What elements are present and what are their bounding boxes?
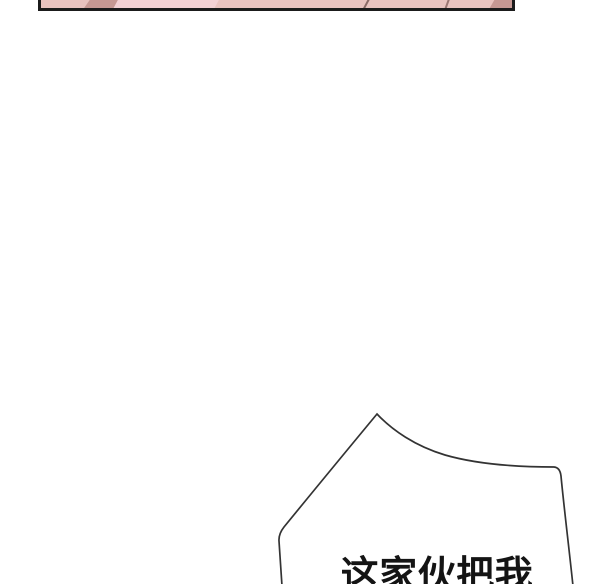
comic-panel-top-sliver: [38, 0, 515, 11]
panel-sketch-line-1: [362, 0, 376, 11]
panel-sketch-line-2: [444, 0, 455, 11]
comic-page: 这家伙把我: [0, 0, 600, 584]
panel-shading-right: [488, 0, 515, 11]
speech-bubble-text: 这家伙把我: [341, 557, 534, 584]
panel-highlight-area: [112, 0, 224, 11]
